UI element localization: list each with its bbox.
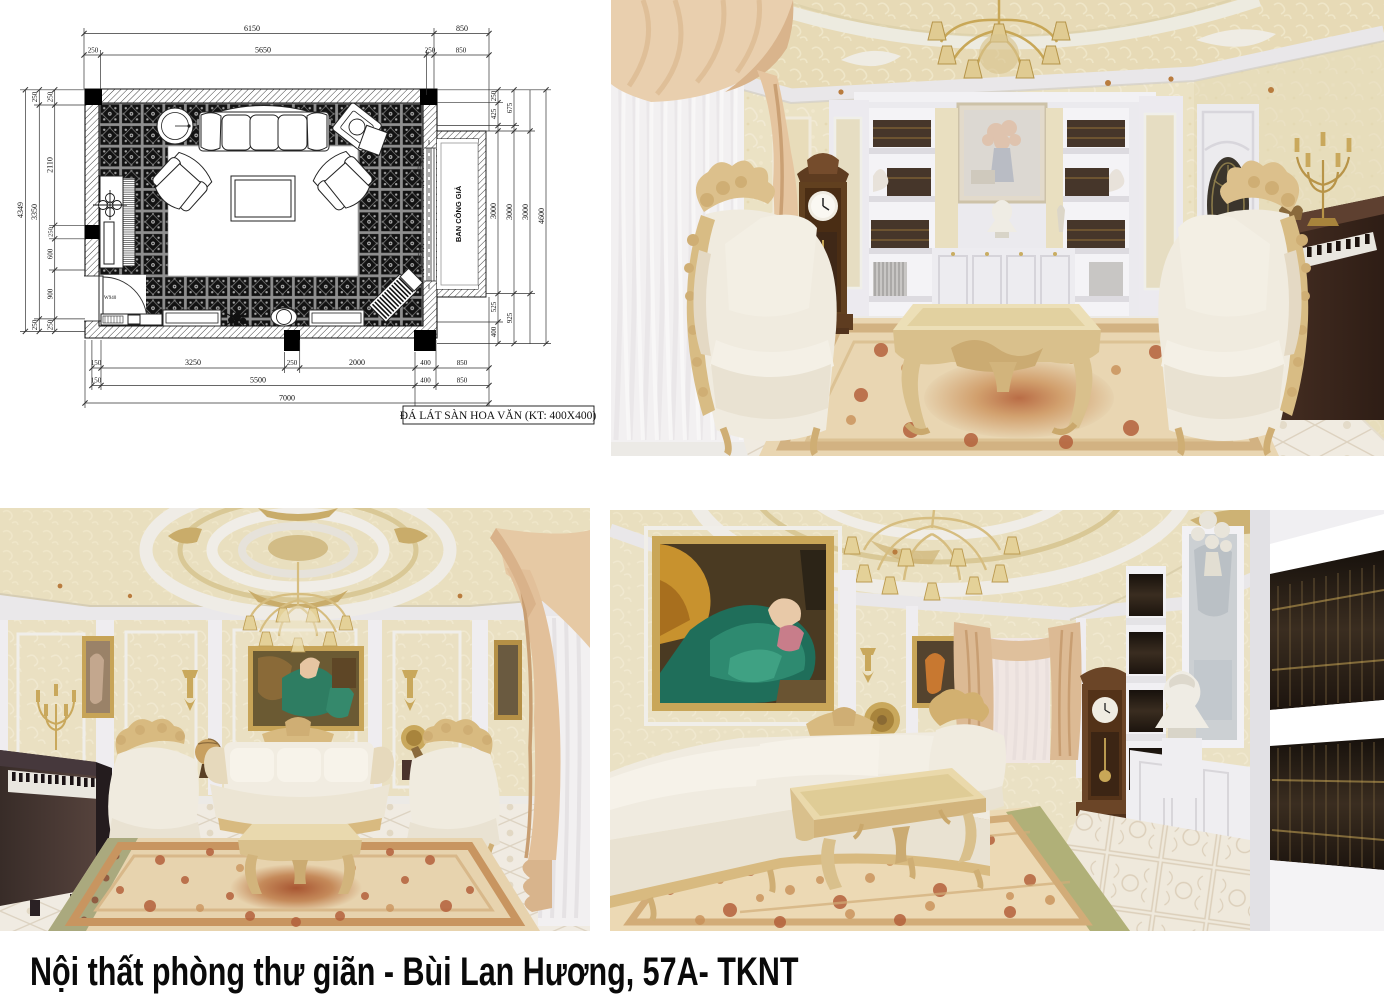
svg-text:425: 425 (490, 108, 498, 119)
svg-text:600: 600 (47, 248, 55, 259)
svg-text:3250: 3250 (185, 358, 201, 367)
svg-text:4349: 4349 (16, 202, 25, 218)
svg-text:2110: 2110 (46, 157, 55, 173)
svg-text:2000: 2000 (349, 358, 365, 367)
svg-text:ĐÁ LÁT SÀN HOA VĂN (KT: 400X40: ĐÁ LÁT SÀN HOA VĂN (KT: 400X400) (400, 408, 597, 422)
svg-text:250: 250 (47, 91, 55, 102)
svg-text:250: 250 (47, 319, 55, 330)
svg-text:W940: W940 (104, 296, 117, 301)
svg-text:5650: 5650 (255, 46, 271, 55)
svg-text:850: 850 (457, 359, 468, 367)
svg-text:3350: 3350 (30, 204, 39, 220)
svg-text:BAN CÔNG GIẢ: BAN CÔNG GIẢ (454, 185, 463, 242)
svg-text:250: 250 (490, 90, 498, 101)
svg-text:3000: 3000 (489, 203, 498, 219)
svg-text:5500: 5500 (250, 376, 266, 385)
svg-text:150: 150 (91, 377, 102, 385)
svg-text:850: 850 (456, 47, 467, 55)
svg-text:400: 400 (490, 326, 498, 337)
svg-text:4600: 4600 (537, 208, 546, 224)
svg-text:250: 250 (31, 319, 39, 330)
svg-text:7000: 7000 (279, 394, 295, 403)
svg-text:900: 900 (47, 288, 55, 299)
svg-text:250: 250 (48, 227, 55, 237)
svg-text:850: 850 (457, 377, 468, 385)
svg-text:250: 250 (31, 91, 39, 102)
svg-text:250: 250 (425, 47, 436, 55)
svg-text:525: 525 (490, 301, 498, 312)
svg-text:6150: 6150 (244, 24, 260, 33)
svg-text:3000: 3000 (521, 204, 530, 220)
svg-text:250: 250 (88, 47, 99, 55)
svg-text:3000: 3000 (505, 204, 514, 220)
svg-text:400: 400 (420, 359, 431, 367)
svg-text:925: 925 (506, 312, 514, 323)
svg-text:400: 400 (420, 377, 431, 385)
svg-text:150: 150 (91, 359, 102, 367)
svg-text:675: 675 (506, 102, 514, 113)
svg-text:850: 850 (456, 24, 468, 33)
svg-text:250: 250 (287, 359, 298, 367)
